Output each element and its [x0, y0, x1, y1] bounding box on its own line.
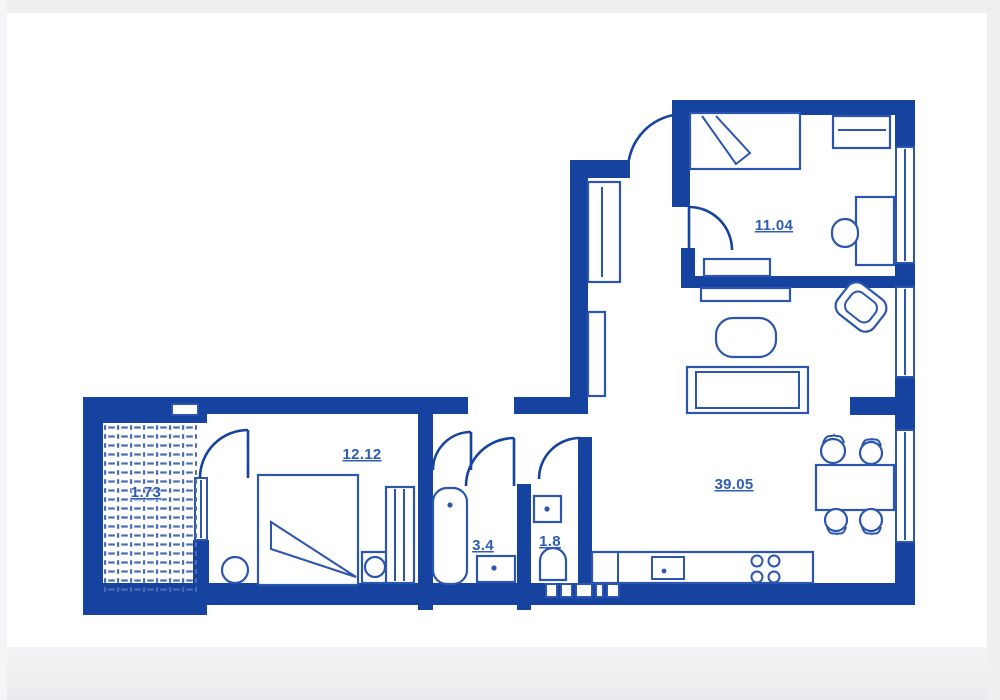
- balcony: [103, 423, 197, 593]
- hallway-furniture: [588, 182, 620, 396]
- balcony-area-label: 1.73: [131, 484, 161, 501]
- door-icon: [466, 438, 514, 486]
- door-icon: [689, 207, 732, 250]
- balcony-hatch: [103, 423, 197, 593]
- floor-plan: 1.73 12.12 3.4 1.8 11.04 39.05: [0, 0, 1000, 700]
- coffee-table-icon: [716, 318, 776, 357]
- bedroom-furniture: [222, 475, 414, 585]
- desk-icon: [856, 197, 894, 265]
- sofa-icon: [687, 367, 808, 413]
- dining-chair-icon: [821, 435, 845, 463]
- child-room-furniture: [690, 113, 894, 276]
- bedside-lamp-icon: [365, 557, 385, 577]
- hall-wardrobe-icon: [588, 182, 620, 282]
- dresser-icon: [704, 259, 770, 276]
- hall-cabinet-icon: [588, 312, 605, 396]
- bathroom-sink-icon: [477, 556, 515, 582]
- wardrobe-icon: [386, 487, 414, 583]
- kitchen-counter-icon: [592, 552, 813, 583]
- living-room-furniture: [592, 278, 894, 583]
- dining-chair-icon: [825, 509, 847, 534]
- bedroom-area-label: 12.12: [342, 446, 381, 463]
- living-area-label: 39.05: [714, 476, 753, 493]
- dining-chair-icon: [860, 509, 882, 534]
- wc-area-label: 1.8: [539, 533, 561, 550]
- bathtub-icon: [433, 488, 467, 584]
- toilet-icon: [540, 548, 566, 580]
- shaft-openings: [546, 584, 619, 597]
- doors: [200, 114, 732, 486]
- window-icon: [896, 430, 914, 542]
- window-icon: [896, 287, 914, 377]
- desk-chair-icon: [832, 219, 858, 247]
- wardrobe-icon: [833, 116, 890, 148]
- bedside-lamp-icon: [222, 557, 248, 583]
- door-icon: [433, 432, 471, 470]
- tv-stand-icon: [701, 288, 790, 301]
- bathroom-area-label: 3.4: [472, 537, 494, 554]
- dining-table-icon: [816, 465, 894, 510]
- dining-set: [816, 435, 894, 534]
- child-room-area-label: 11.04: [755, 217, 794, 234]
- door-icon: [539, 438, 580, 479]
- balcony-door-icon: [200, 430, 248, 478]
- wc-sink-icon: [534, 496, 561, 522]
- window-icon: [896, 147, 914, 263]
- dining-chair-icon: [860, 439, 882, 464]
